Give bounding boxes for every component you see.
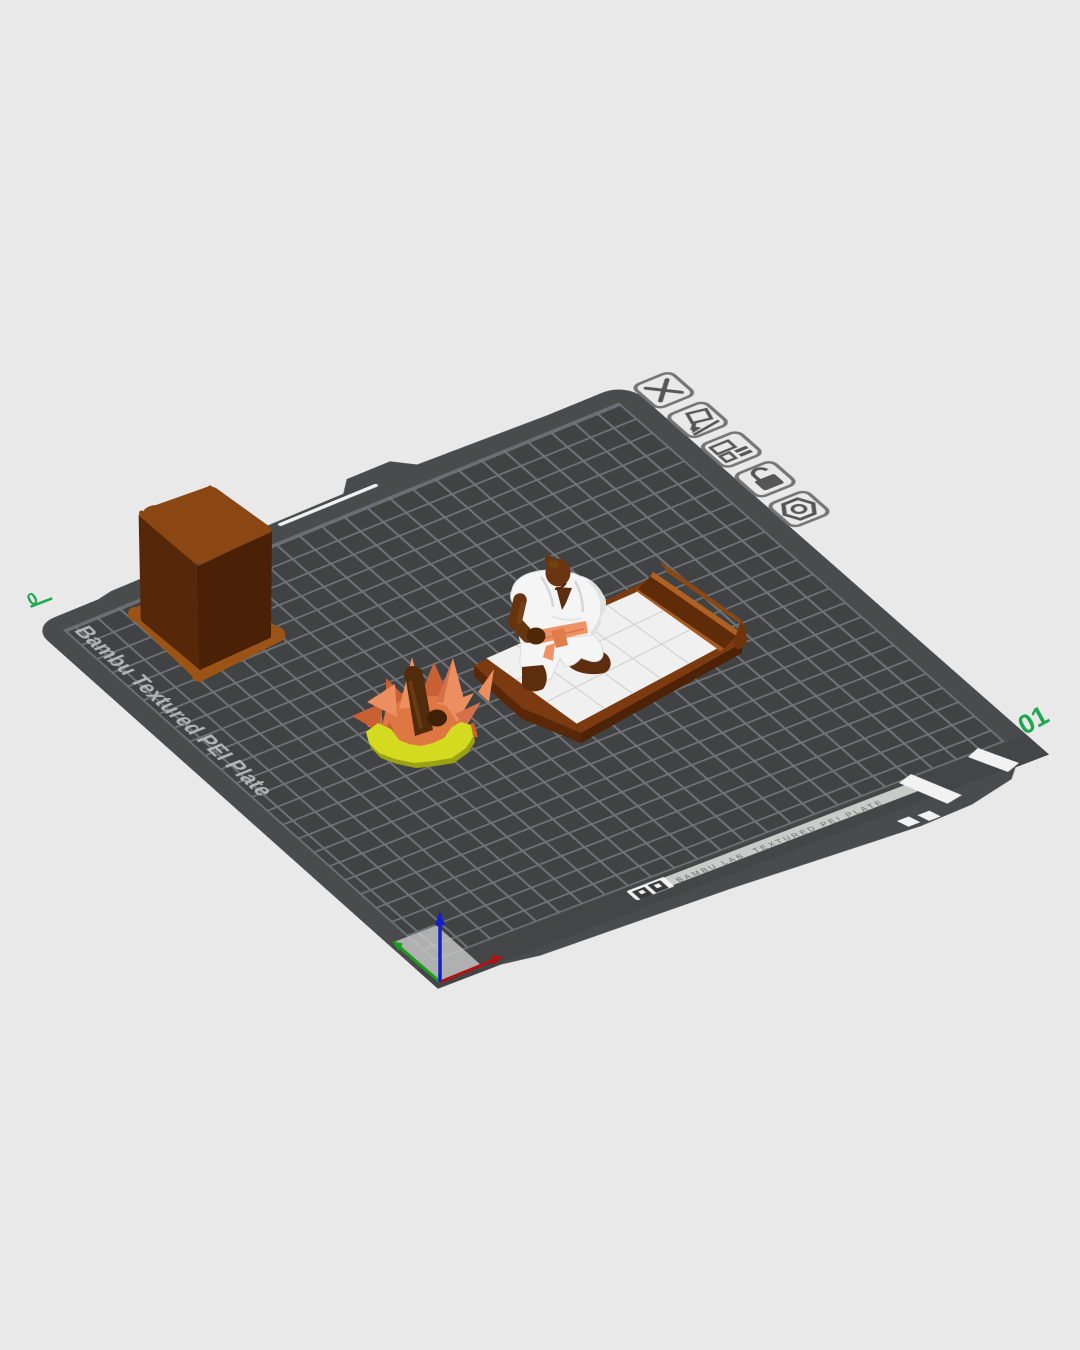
- svg-text:01: 01: [1013, 700, 1054, 741]
